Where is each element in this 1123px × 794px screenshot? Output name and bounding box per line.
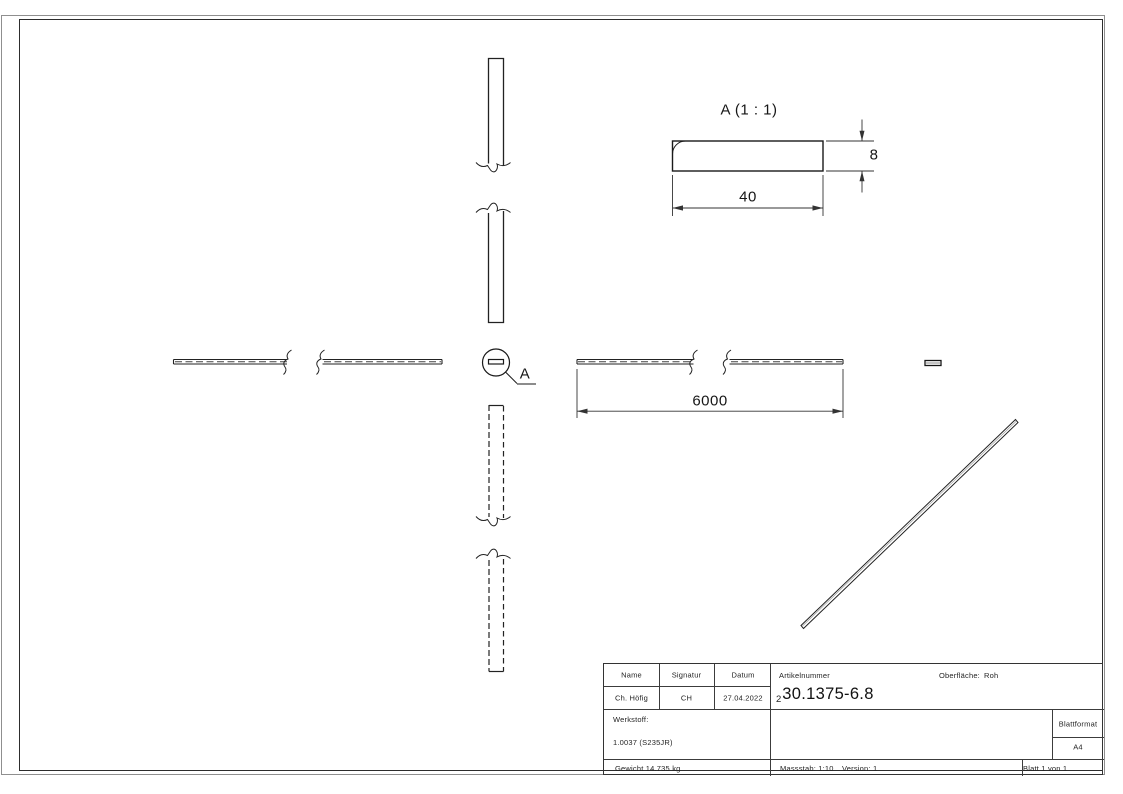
- tb-line: [604, 709, 1104, 710]
- detail-view-a: [673, 141, 824, 171]
- tb-werkstoff-value: 1.0037 (S235JR): [613, 738, 673, 747]
- tb-oberflaeche-label: Oberfläche:: [939, 671, 980, 680]
- detail-height-dim-text: 8: [870, 147, 879, 164]
- tb-datum-header: Datum: [731, 671, 754, 680]
- tb-oberflaeche-value: Roh: [984, 671, 998, 680]
- main-view-horizontal-bar: [577, 350, 843, 375]
- tb-name-header: Name: [621, 671, 642, 680]
- detail-view-title: A (1 : 1): [720, 102, 777, 119]
- tb-massstab-value: Massstab: 1:10: [780, 764, 834, 773]
- tb-werkstoff-label: Werkstoff:: [613, 715, 648, 724]
- tb-artikelnummer-value: 230.1375-6.8: [776, 685, 874, 704]
- tb-line: [1052, 737, 1104, 738]
- tb-gewicht-value: Gewicht 14.735 kg: [615, 764, 681, 773]
- tb-version-value: Version: 1: [842, 764, 877, 773]
- tb-artikelnummer-label: Artikelnummer: [779, 671, 830, 680]
- detail-width-dim-text: 40: [739, 189, 757, 206]
- tb-line: [604, 759, 1104, 760]
- drawing-sheet: A (1 : 1) 40 8 6000 A Name Signatur Datu…: [0, 0, 1123, 794]
- top-view-vertical-bar: [476, 59, 511, 323]
- tb-name-value: Ch. Höfig: [615, 693, 648, 702]
- tb-signatur-value: CH: [681, 693, 692, 702]
- tb-signatur-header: Signatur: [672, 671, 702, 680]
- detail-height-dimension: [826, 120, 874, 193]
- isometric-view-bar: [801, 420, 1018, 629]
- left-view-horizontal-bar: [174, 350, 443, 375]
- bottom-view-vertical-bar: [476, 405, 511, 672]
- tb-datum-value: 27.04.2022: [723, 693, 763, 702]
- tb-blatt-value: Blatt 1 von 1: [1023, 764, 1067, 773]
- tb-blattformat-label: Blattformat: [1059, 720, 1097, 729]
- title-block: Name Signatur Datum Ch. Höfig CH 27.04.2…: [603, 663, 1103, 775]
- tb-line: [604, 686, 770, 687]
- length-dim-text: 6000: [692, 393, 727, 410]
- tb-artikelnummer-prefix: 2: [776, 694, 781, 705]
- detail-marker-letter: A: [520, 366, 531, 383]
- tb-line: [1052, 709, 1053, 760]
- tb-blattformat-value: A4: [1073, 743, 1083, 752]
- end-view-small-rect: [925, 361, 941, 366]
